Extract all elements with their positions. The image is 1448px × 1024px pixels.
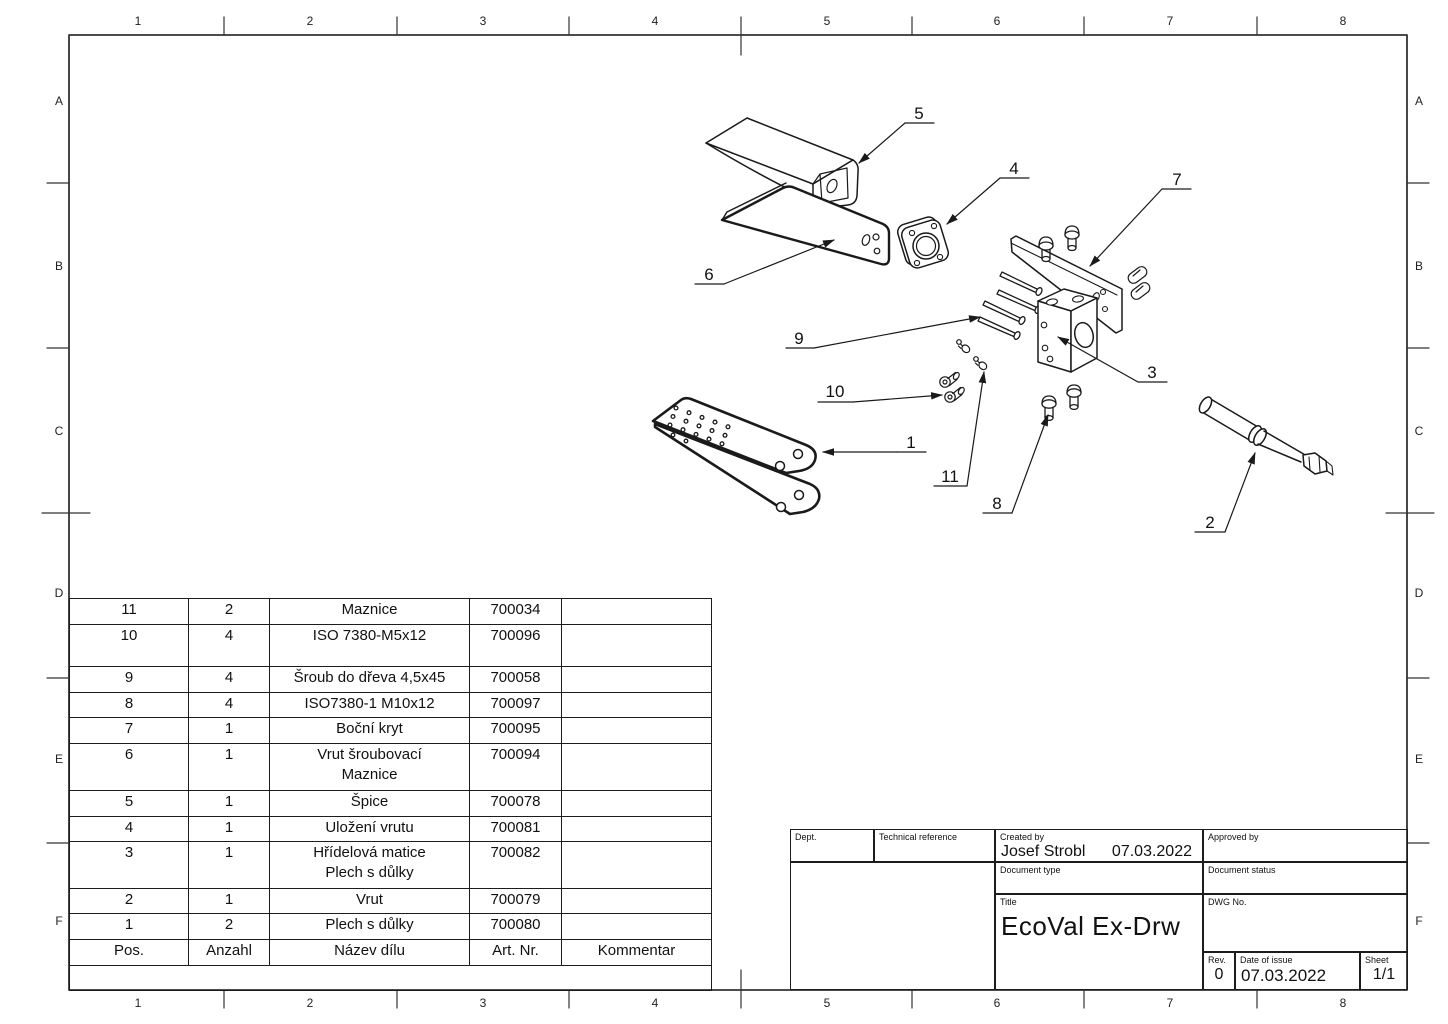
rev-cell: Rev. 0 <box>1203 952 1235 990</box>
technical-reference-label: Technical reference <box>875 830 994 842</box>
row-label-left: A <box>55 94 63 108</box>
bom-art: 700096 <box>470 625 562 667</box>
bom-qty: 1 <box>189 842 270 889</box>
bom-header-qty: Anzahl <box>189 940 270 966</box>
column-label-bottom: 4 <box>652 996 659 1010</box>
bom-pos: 5 <box>70 791 189 817</box>
title-block: Dept. Technical reference Created by Jos… <box>790 829 1408 990</box>
bom-pos: 9 <box>70 667 189 693</box>
callout-label: 7 <box>1172 170 1181 189</box>
dept-cell: Dept. <box>790 829 874 862</box>
bom-name: Vrut šroubovacíMaznice <box>270 744 470 791</box>
row-label-left: B <box>55 259 63 273</box>
bom-comment <box>562 625 712 667</box>
bom-qty: 2 <box>189 914 270 940</box>
document-type-label: Document type <box>996 863 1202 875</box>
table-row: 6 1 Vrut šroubovacíMaznice 700094 <box>70 744 712 791</box>
bom-art: 700079 <box>470 889 562 914</box>
bom-name-line2: Maznice <box>272 765 467 785</box>
row-label-right: C <box>1415 424 1424 438</box>
title-block-empty-cell <box>790 862 995 990</box>
table-row: 4 1 Uložení vrutu 700081 <box>70 817 712 842</box>
column-label-bottom: 6 <box>994 996 1001 1010</box>
row-label-right: D <box>1415 586 1424 600</box>
bom-name-line: Plech s důlky <box>272 915 467 935</box>
part-small-screw-pair <box>1128 267 1150 300</box>
document-status-label: Document status <box>1204 863 1407 875</box>
callout-2: 2 <box>1195 453 1255 532</box>
callout-label: 4 <box>1009 159 1018 178</box>
approved-by-cell: Approved by <box>1203 829 1408 862</box>
bom-name-line: Uložení vrutu <box>272 818 467 838</box>
row-label-right: E <box>1415 752 1423 766</box>
table-row: 1 2 Plech s důlky 700080 <box>70 914 712 940</box>
title-cell: Title EcoVal Ex-Drw <box>995 894 1203 990</box>
column-label-top: 2 <box>307 14 314 28</box>
bom-art: 700034 <box>470 599 562 625</box>
callout-label: 2 <box>1205 513 1214 532</box>
bom-comment <box>562 791 712 817</box>
bom-qty: 1 <box>189 718 270 744</box>
bom-pos: 3 <box>70 842 189 889</box>
column-label-top: 4 <box>652 14 659 28</box>
row-label-left: E <box>55 752 63 766</box>
bom-comment <box>562 889 712 914</box>
callout-5: 5 <box>859 104 934 163</box>
bom-pos: 7 <box>70 718 189 744</box>
bom-comment <box>562 914 712 940</box>
bom-name: ISO 7380-M5x12 <box>270 625 470 667</box>
callout-label: 10 <box>826 382 845 401</box>
sheet-label: Sheet <box>1361 953 1407 965</box>
title-label: Title <box>996 895 1202 907</box>
table-row: 7 1 Boční kryt 700095 <box>70 718 712 744</box>
sheet-value: 1/1 <box>1361 965 1407 984</box>
column-label-top: 5 <box>824 14 831 28</box>
part-vrut-rod <box>1197 395 1333 475</box>
bom-comment <box>562 744 712 791</box>
bom-comment <box>562 599 712 625</box>
table-row: 3 1 Hřídelová maticePlech s důlky 700082 <box>70 842 712 889</box>
bom-qty: 1 <box>189 744 270 791</box>
bom-name: Hřídelová maticePlech s důlky <box>270 842 470 889</box>
bom-name: Šroub do dřeva 4,5x45 <box>270 667 470 693</box>
table-row: 2 1 Vrut 700079 <box>70 889 712 914</box>
column-label-top: 6 <box>994 14 1001 28</box>
callout-label: 5 <box>914 104 923 123</box>
callout-1: 1 <box>823 433 926 452</box>
rev-label: Rev. <box>1204 953 1234 965</box>
parts-list-table: 11 2 Maznice 700034 10 4 ISO 7380-M5x12 … <box>69 598 712 991</box>
created-by-date: 07.03.2022 <box>1112 843 1192 861</box>
column-label-bottom: 5 <box>824 996 831 1010</box>
column-label-bottom: 1 <box>135 996 142 1010</box>
bom-name-line: ISO 7380-M5x12 <box>272 626 467 646</box>
table-header-row: Pos. Anzahl Název dílu Art. Nr. Kommenta… <box>70 940 712 966</box>
column-label-top: 1 <box>135 14 142 28</box>
bom-qty: 4 <box>189 667 270 693</box>
bom-name-line: Hřídelová matice <box>272 843 467 863</box>
column-label-top: 8 <box>1340 14 1347 28</box>
created-by-name: Josef Strobl <box>1001 843 1085 861</box>
date-of-issue-cell: Date of issue 07.03.2022 <box>1235 952 1360 990</box>
bom-header-name: Název dílu <box>270 940 470 966</box>
bom-qty: 2 <box>189 599 270 625</box>
rev-value: 0 <box>1204 965 1234 984</box>
bom-name: Špice <box>270 791 470 817</box>
part-flange <box>896 215 951 270</box>
table-row: 10 4 ISO 7380-M5x12 700096 <box>70 625 712 667</box>
bom-pos: 11 <box>70 599 189 625</box>
dwg-no-cell: DWG No. <box>1203 894 1408 952</box>
callout-8: 8 <box>983 415 1048 513</box>
sheet-cell: Sheet 1/1 <box>1360 952 1408 990</box>
bom-name-line: Vrut šroubovací <box>272 745 467 765</box>
callout-7: 7 <box>1090 170 1191 266</box>
bom-name: Uložení vrutu <box>270 817 470 842</box>
callout-6: 6 <box>695 240 834 284</box>
part-shaft-nut-block <box>1038 289 1097 372</box>
part-button-screws-left <box>940 371 966 402</box>
callout-9: 9 <box>786 317 980 348</box>
bom-pos: 4 <box>70 817 189 842</box>
bom-name: Boční kryt <box>270 718 470 744</box>
bom-name-line: Maznice <box>272 600 467 620</box>
date-of-issue-value: 07.03.2022 <box>1236 965 1359 986</box>
row-label-right: F <box>1415 914 1422 928</box>
column-label-top: 7 <box>1167 14 1174 28</box>
column-label-bottom: 8 <box>1340 996 1347 1010</box>
table-row: 8 4 ISO7380-1 M10x12 700097 <box>70 693 712 718</box>
bom-pos: 2 <box>70 889 189 914</box>
part-grease-nipples <box>957 340 988 371</box>
document-status-cell: Document status <box>1203 862 1408 894</box>
row-label-right: A <box>1415 94 1423 108</box>
bom-pos: 1 <box>70 914 189 940</box>
bom-name-line: Vrut <box>272 890 467 910</box>
bom-empty-cell <box>70 966 712 991</box>
bom-header-pos: Pos. <box>70 940 189 966</box>
column-label-bottom: 3 <box>480 996 487 1010</box>
bom-art: 700081 <box>470 817 562 842</box>
dwg-no-label: DWG No. <box>1204 895 1407 907</box>
part-vrut-blade <box>722 183 889 264</box>
bom-qty: 1 <box>189 791 270 817</box>
part-button-screws-top <box>1039 226 1079 262</box>
callout-label: 9 <box>794 329 803 348</box>
bom-name-line2: Plech s důlky <box>272 863 467 883</box>
bom-comment <box>562 693 712 718</box>
bom-qty: 1 <box>189 817 270 842</box>
column-label-top: 3 <box>480 14 487 28</box>
bom-pos: 6 <box>70 744 189 791</box>
callout-10: 10 <box>818 382 942 402</box>
dept-label: Dept. <box>791 830 873 842</box>
column-label-bottom: 7 <box>1167 996 1174 1010</box>
bom-header-comment: Kommentar <box>562 940 712 966</box>
bom-qty: 1 <box>189 889 270 914</box>
document-type-cell: Document type <box>995 862 1203 894</box>
bom-art: 700082 <box>470 842 562 889</box>
created-by-label: Created by <box>996 830 1202 842</box>
approved-by-label: Approved by <box>1204 830 1407 842</box>
bom-comment <box>562 667 712 693</box>
bom-art: 700094 <box>470 744 562 791</box>
callout-label: 6 <box>704 265 713 284</box>
callout-label: 3 <box>1147 363 1156 382</box>
table-row: 11 2 Maznice 700034 <box>70 599 712 625</box>
bom-art: 700097 <box>470 693 562 718</box>
table-empty-row <box>70 966 712 991</box>
bom-art: 700095 <box>470 718 562 744</box>
row-label-right: B <box>1415 259 1423 273</box>
date-of-issue-label: Date of issue <box>1236 953 1359 965</box>
callout-label: 11 <box>941 467 959 486</box>
bom-pos: 8 <box>70 693 189 718</box>
bom-name-line: ISO7380-1 M10x12 <box>272 694 467 714</box>
bom-comment <box>562 718 712 744</box>
bom-name-line: Špice <box>272 792 467 812</box>
created-by-cell: Created by Josef Strobl 07.03.2022 <box>995 829 1203 862</box>
table-row: 5 1 Špice 700078 <box>70 791 712 817</box>
bom-name: Vrut <box>270 889 470 914</box>
bom-qty: 4 <box>189 625 270 667</box>
part-wood-screws <box>978 272 1043 340</box>
row-label-left: D <box>55 586 64 600</box>
bom-comment <box>562 842 712 889</box>
row-label-left: C <box>55 424 64 438</box>
callout-label: 1 <box>906 433 915 452</box>
technical-reference-cell: Technical reference <box>874 829 995 862</box>
bom-name: Maznice <box>270 599 470 625</box>
bom-name: ISO7380-1 M10x12 <box>270 693 470 718</box>
bom-comment <box>562 817 712 842</box>
bom-name-line: Šroub do dřeva 4,5x45 <box>272 668 467 688</box>
column-label-bottom: 2 <box>307 996 314 1010</box>
bom-name-line: Boční kryt <box>272 719 467 739</box>
bom-qty: 4 <box>189 693 270 718</box>
callout-label: 8 <box>992 494 1001 513</box>
bom-header-art: Art. Nr. <box>470 940 562 966</box>
callout-4: 4 <box>947 159 1029 224</box>
bom-art: 700058 <box>470 667 562 693</box>
row-label-left: F <box>55 914 62 928</box>
bom-art: 700078 <box>470 791 562 817</box>
bom-art: 700080 <box>470 914 562 940</box>
bom-pos: 10 <box>70 625 189 667</box>
table-row: 9 4 Šroub do dřeva 4,5x45 700058 <box>70 667 712 693</box>
bom-name: Plech s důlky <box>270 914 470 940</box>
drawing-sheet: 5 4 7 6 9 3 10 1 <box>0 0 1448 1024</box>
drawing-title: EcoVal Ex-Drw <box>996 907 1202 942</box>
